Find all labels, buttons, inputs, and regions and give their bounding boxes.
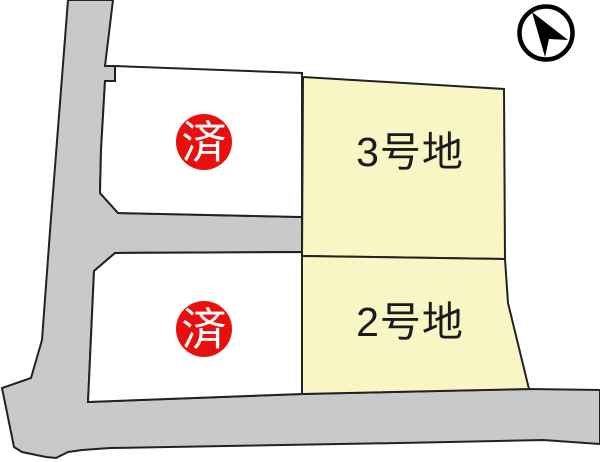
sold-badge-north: 済 xyxy=(176,114,232,170)
map-canvas xyxy=(0,0,600,462)
sold-badge-south: 済 xyxy=(176,301,232,357)
lot-plan-map: 3号地 2号地 済 済 xyxy=(0,0,600,462)
lot-3-label: 3号地 xyxy=(310,127,510,177)
sold-badge-north-label: 済 xyxy=(181,120,226,165)
sold-badge-south-label: 済 xyxy=(181,307,226,352)
lot-2-label: 2号地 xyxy=(310,297,510,347)
compass-needle xyxy=(532,12,568,57)
north-arrow-icon xyxy=(520,7,573,60)
